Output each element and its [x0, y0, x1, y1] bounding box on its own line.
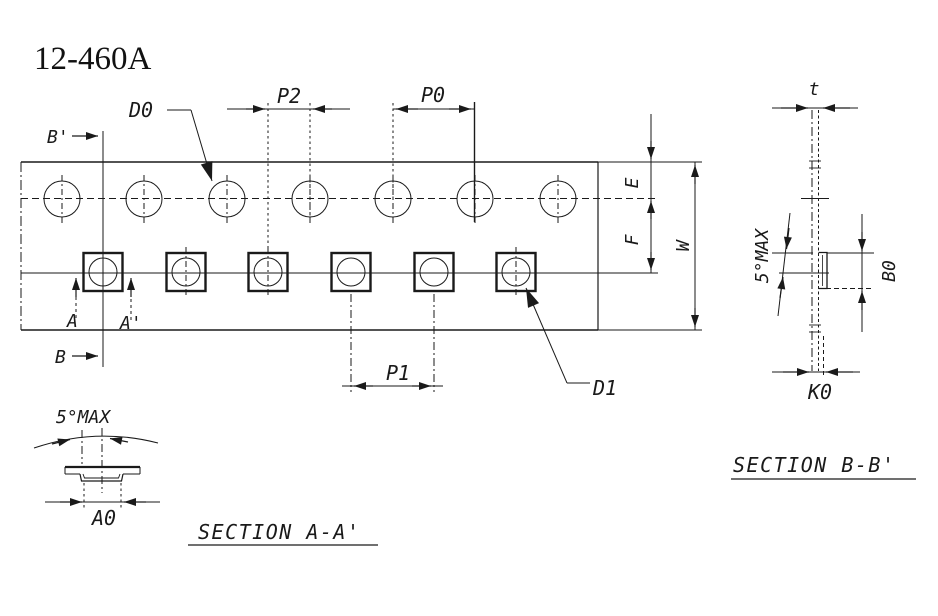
dim-p1-label: P1 [386, 361, 410, 385]
dim-p1: P1 [342, 294, 443, 392]
dim-w: W [673, 162, 695, 330]
dim-a0-label: A0 [90, 506, 116, 530]
tape-outline [21, 162, 702, 330]
section-a-view: 5°MAX A0 SECTION A-A' [34, 407, 378, 545]
section-a-caption: SECTION A-A' [198, 520, 361, 544]
section-b-label: B [55, 347, 66, 368]
dim-p2-label: P2 [277, 84, 301, 108]
dim-b0-label: B0 [879, 260, 900, 282]
leader-d0: D0 [128, 98, 212, 181]
dim-t-label: t [809, 79, 820, 100]
dim-d1-label: D1 [592, 376, 617, 400]
drawing-number-title: 12-460A [34, 41, 151, 77]
dim-b0: B0 [818, 214, 900, 332]
dim-e-label: E [622, 177, 643, 188]
dim-p2: P2 [227, 84, 350, 249]
dim-w-label: W [673, 238, 694, 251]
section-b-caption: SECTION B-B' [733, 453, 896, 477]
dim-e-f: E F [622, 114, 651, 273]
dim-p0-label: P0 [421, 83, 445, 107]
section-a-angle-label: 5°MAX [56, 407, 111, 428]
dim-d0-label: D0 [128, 98, 153, 122]
dim-k0-label: K0 [807, 380, 832, 404]
dim-p0: P0 [393, 83, 475, 222]
tape-strip-profile [772, 110, 829, 371]
section-b-angle: 5°MAX [752, 213, 790, 316]
technical-drawing: 12-460A [0, 0, 938, 616]
leader-d1: D1 [526, 288, 617, 400]
dim-k0: K0 [772, 336, 860, 404]
section-b-angle-label: 5°MAX [752, 228, 773, 283]
pockets [84, 247, 536, 297]
dim-f-label: F [622, 233, 643, 245]
section-b-prime-label: B' [47, 127, 69, 148]
drawing-sheet: 12-460A [0, 0, 938, 616]
pocket-holes [89, 258, 530, 286]
section-a-label: A [66, 311, 78, 332]
section-a-prime-label: A' [119, 313, 142, 334]
section-b-view: t 5°MAX [731, 79, 916, 479]
